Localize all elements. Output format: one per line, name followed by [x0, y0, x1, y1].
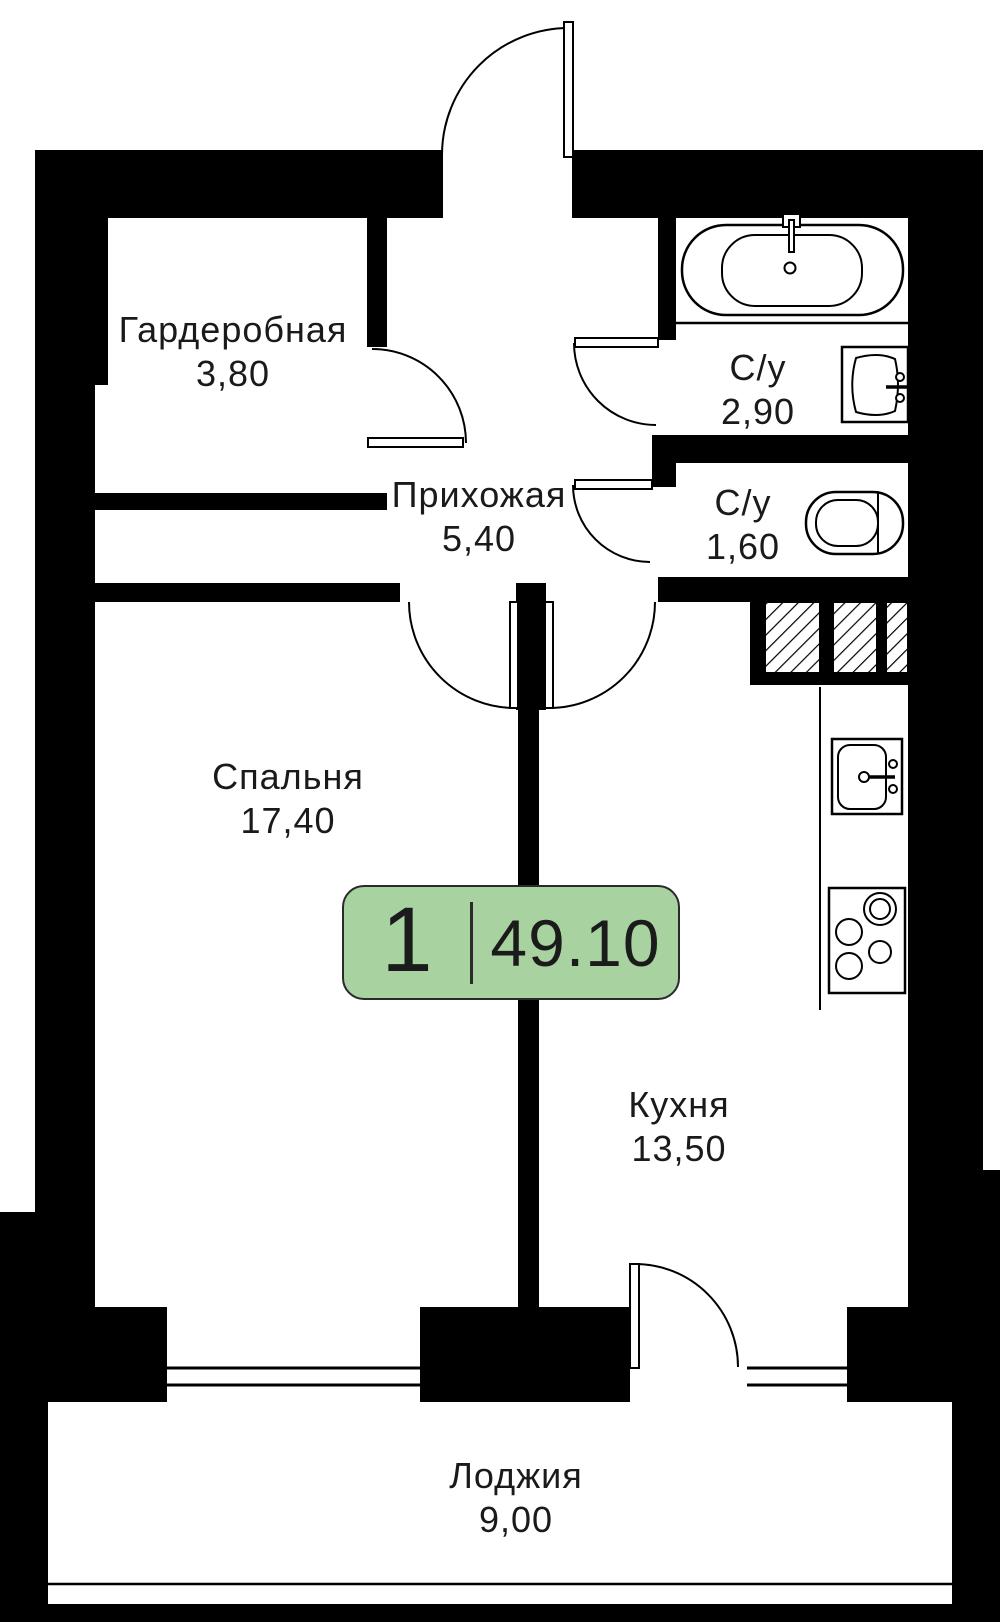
kitchen-window: [747, 1368, 847, 1385]
room-area: 1,60: [706, 525, 780, 569]
wall-center-post: [516, 583, 546, 710]
wall-bedroom-top: [95, 583, 400, 602]
room-area: 5,40: [392, 517, 567, 561]
room-area: 17,40: [212, 799, 364, 843]
rooms-count: 1: [344, 894, 470, 992]
wall-wardrobe-partition: [367, 218, 387, 347]
wall-shaft-top: [658, 577, 750, 602]
entrance-door-arc: [442, 28, 569, 155]
wall-left-step: [95, 218, 108, 385]
wall-loggia-bottom: [0, 1604, 1000, 1622]
washbasin-icon: [842, 347, 908, 422]
vent-shaft-icon: [765, 602, 908, 673]
room-name: Прихожая: [392, 474, 567, 515]
room-label-bedroom: Спальня 17,40: [212, 755, 364, 843]
kitchen-sink-icon: [832, 739, 902, 814]
room-name: Гардеробная: [119, 309, 348, 350]
bathroom2-door-arc: [573, 485, 650, 562]
room-name: С/у: [714, 482, 771, 523]
wall-right-upper: [908, 218, 983, 1170]
entrance-door-leaf: [564, 22, 573, 157]
wall-top-left: [35, 150, 443, 218]
room-area: 3,80: [119, 352, 348, 396]
loggia-door-leaf: [630, 1264, 639, 1368]
wall-bath-stub: [652, 463, 676, 487]
wall-wardrobe-bottom: [95, 493, 387, 510]
wall-bath-divider: [652, 435, 908, 463]
room-label-kitchen: Кухня 13,50: [628, 1083, 729, 1171]
kitchen-door-arc: [549, 602, 655, 708]
room-area: 9,00: [449, 1498, 583, 1542]
wardrobe-door-arc: [372, 349, 466, 443]
floor-plan-drawing: [0, 0, 1000, 1622]
bedroom-window: [167, 1368, 420, 1385]
wall-bottom-b: [420, 1307, 630, 1402]
room-area: 2,90: [721, 390, 795, 434]
bathroom1-door-leaf: [575, 338, 658, 347]
room-name: С/у: [729, 347, 786, 388]
wall-room-divider: [518, 710, 539, 1307]
room-name: Лоджия: [449, 1455, 583, 1496]
wall-bath-partition: [658, 218, 676, 340]
loggia-door-arc: [635, 1264, 738, 1367]
wall-loggia-left: [0, 1212, 48, 1622]
wall-bottom-a: [35, 1307, 167, 1402]
room-label-wardrobe: Гардеробная 3,80: [119, 308, 348, 396]
wardrobe-door-leaf: [368, 438, 463, 447]
bathroom2-door-leaf: [575, 480, 652, 489]
room-name: Спальня: [212, 756, 364, 797]
total-area: 49.10: [473, 910, 678, 976]
bathroom1-door-arc: [574, 343, 656, 425]
room-label-loggia: Лоджия 9,00: [449, 1454, 583, 1542]
floor-plan: Гардеробная 3,80 Прихожая 5,40 С/у 2,90 …: [0, 0, 1000, 1622]
bedroom-door-leaf: [510, 602, 518, 708]
bedroom-door-arc: [409, 602, 515, 708]
wall-top-right: [572, 150, 983, 218]
toilet-icon: [806, 492, 903, 554]
room-label-bathroom-1: С/у 2,90: [721, 346, 795, 434]
stove-icon: [829, 888, 905, 993]
room-name: Кухня: [628, 1084, 729, 1125]
wall-left: [35, 150, 95, 1307]
room-label-bathroom-2: С/у 1,60: [706, 481, 780, 569]
area-badge: 1 49.10: [342, 885, 680, 1000]
bathtub-icon: [682, 214, 903, 315]
room-area: 13,50: [628, 1127, 729, 1171]
kitchen-door-leaf: [545, 602, 553, 708]
wall-loggia-right: [952, 1402, 1000, 1622]
room-label-hallway: Прихожая 5,40: [392, 473, 567, 561]
wall-bottom-c: [847, 1307, 1000, 1402]
